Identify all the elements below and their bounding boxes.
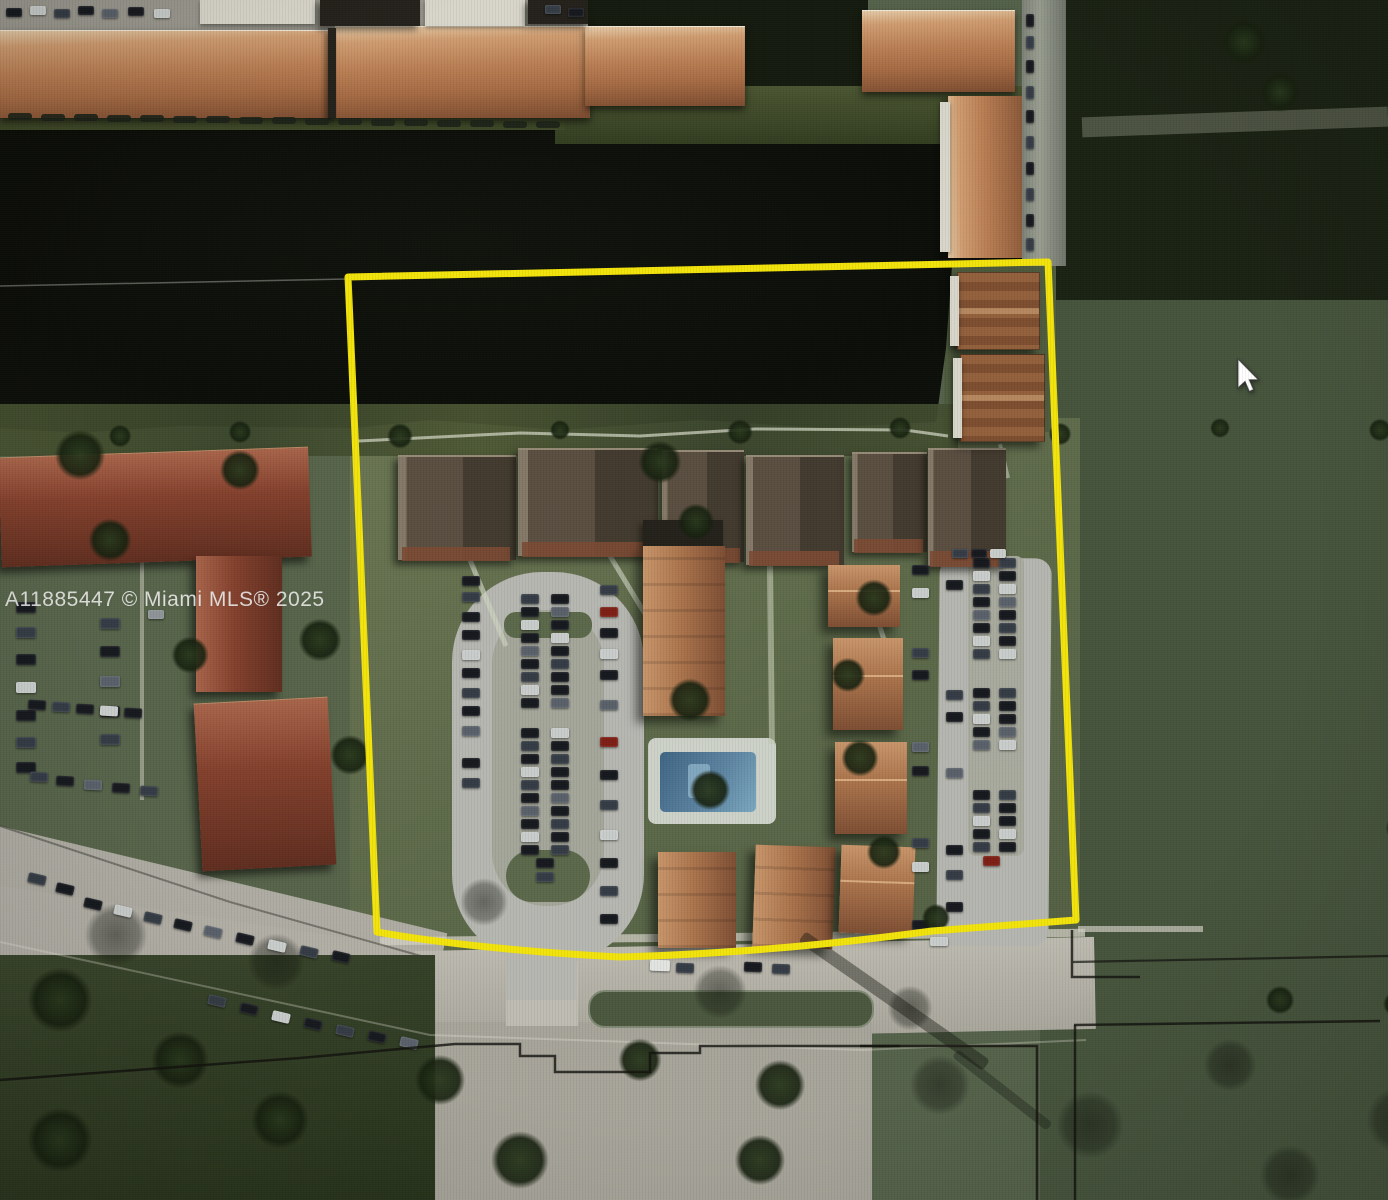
tree-canopy — [322, 727, 378, 783]
tree-canopy — [1252, 64, 1308, 120]
tree-canopy — [745, 1050, 815, 1120]
tree-canopy — [15, 1095, 105, 1185]
tree-canopy — [660, 670, 720, 730]
tree-canopy — [630, 432, 690, 492]
tree-canopy — [164, 629, 216, 681]
tree-canopy — [1260, 980, 1300, 1020]
tree-canopy — [848, 572, 900, 624]
tree-canopy — [1364, 414, 1388, 446]
tree-canopy — [15, 955, 105, 1045]
tree-canopy — [722, 414, 758, 450]
tree-canopy — [1380, 808, 1388, 848]
aerial-satellite-view: A11885447 © Miami MLS® 2025 — [0, 0, 1388, 1200]
mls-watermark: A11885447 © Miami MLS® 2025 — [5, 588, 325, 612]
tree-canopy — [670, 496, 722, 548]
tree-canopy — [104, 420, 136, 452]
tree-canopy — [860, 828, 908, 876]
tree-canopy — [824, 651, 872, 699]
tree-canopy — [834, 732, 886, 784]
mouse-cursor-icon — [1237, 358, 1263, 396]
tree-canopy — [725, 1125, 795, 1195]
tree-canopy — [240, 1080, 320, 1160]
tree-canopy — [682, 762, 738, 818]
tree-canopy — [916, 898, 956, 938]
tree-canopy — [405, 1045, 475, 1115]
tree-canopy — [884, 412, 916, 444]
tree-canopy — [610, 1030, 670, 1090]
tree-canopy — [1044, 418, 1076, 450]
tree-canopy — [80, 510, 140, 570]
tree-canopy — [212, 442, 268, 498]
tree-canopy — [224, 416, 256, 448]
tree-canopy — [1206, 414, 1234, 442]
tree-canopy — [546, 416, 574, 444]
tree-canopy — [1378, 986, 1388, 1022]
tree-canopy — [290, 610, 350, 670]
tree-canopy — [1212, 10, 1276, 74]
tree-canopy — [140, 1020, 220, 1100]
tree-canopy — [480, 1120, 560, 1200]
tree-canopy — [382, 418, 418, 454]
